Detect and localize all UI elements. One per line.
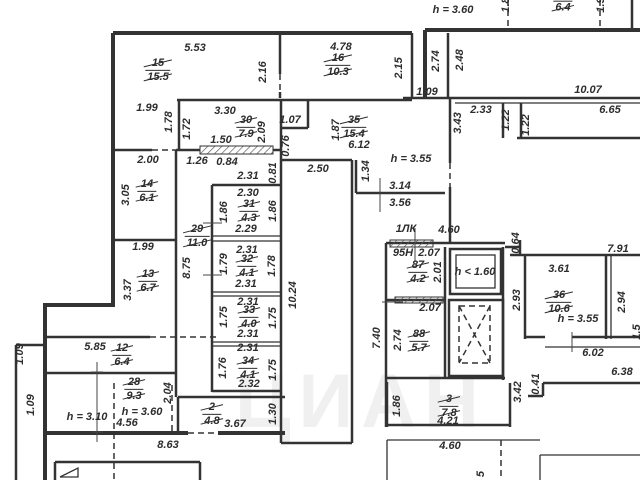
dim-label: 5 [475,471,487,477]
room-number: 32 [237,253,256,267]
room-label-87: 874.2 [408,259,427,285]
dim-label: 2.29 [235,223,256,235]
dim-label: 3.14 [389,180,410,192]
dim-label: 1.50 [210,134,231,146]
dim-label: 0.81 [267,162,279,183]
dim-label: 2.93 [511,289,523,310]
room-area: 6.4 [553,2,572,15]
room-number: 2 [202,401,221,415]
dim-label: 1.22 [520,114,532,135]
dim-label: 0.84 [216,156,237,168]
dim-label: 6.38 [611,366,632,378]
dim-label: 2.48 [454,49,466,70]
room-number: 12 [112,342,131,356]
dim-label: 6.65 [599,104,620,116]
room-number: 14 [137,178,156,192]
room-label-31: 314.3 [239,198,258,224]
dim-label: 2.50 [307,163,328,175]
dim-label: 6.02 [582,347,603,359]
dim-label: 3.05 [120,184,132,205]
room-number: 87 [408,259,427,273]
room-area: 15.4 [341,128,366,141]
room-label-29: 2911.0 [185,223,210,249]
room-area: 10.6 [546,303,571,316]
dim-label: 1.99 [136,102,157,114]
dim-label: 2.31 [235,278,256,290]
dim-label: 2.94 [616,291,628,312]
dim-label: 1.75 [267,307,279,328]
room-area: 4.2 [408,273,427,286]
dim-label: 1.72 [181,118,193,139]
room-area: 15.5 [145,71,170,84]
dim-label: 1.26 [186,155,207,167]
room-label-35: 3515.4 [341,114,366,140]
unit-number-label: 95Н [393,247,413,259]
room-number: 88 [409,328,428,342]
labels-layer: 5.534.78h = 3.601.81.92.162.152.742.481.… [0,0,640,480]
dim-label: 1.86 [218,201,230,222]
dim-label: 1.78 [266,255,278,276]
dim-label: 1.9 [595,0,607,13]
dim-label: 1.30 [267,403,279,424]
dim-label: 2.33 [470,104,491,116]
room-number: 34 [238,355,257,369]
room-area: 6.4 [112,356,131,369]
room-area: 7.8 [439,407,458,420]
room-number: 31 [239,198,258,212]
room-number: 35 [341,114,366,128]
ceiling-height-label: h = 3.55 [391,153,432,165]
room-label-32: 324.1 [237,253,256,279]
dim-label: 8.75 [181,257,193,278]
dim-label: 3.67 [224,418,245,430]
room-area: 4.3 [239,212,258,225]
dim-label: 2.07 [418,247,439,259]
room-label-top: 6.4 [553,0,572,14]
dim-label: 0.41 [530,373,542,394]
dim-label: 1.09 [416,86,437,98]
dim-label: 1.99 [132,241,153,253]
room-number: 30 [236,114,255,128]
room-label-28: 289.3 [124,376,143,402]
dim-label: 2.31 [237,170,258,182]
room-label-33: 334.0 [239,304,258,330]
dim-label: 2.74 [430,50,442,71]
dim-label: 2.07 [419,302,440,314]
dim-label: 5.85 [84,341,105,353]
room-number: 16 [325,52,350,66]
dim-label: 1.78 [163,111,175,132]
dim-label: 3.61 [548,263,569,275]
ceiling-height-label: h = 3.10 [67,411,108,423]
room-number: 28 [124,376,143,390]
dim-label: 0.64 [510,232,522,253]
dim-label: 10.24 [287,281,299,309]
dim-label: 2.04 [162,382,174,403]
dim-label: 1.5 [631,324,640,339]
stairwell-label: 1ЛК [396,223,416,235]
dim-label: 1.76 [217,357,229,378]
room-label-13: 136.7 [138,268,157,294]
floor-plan-canvas: ЦИАН [0,0,640,480]
dim-label: 7.40 [371,327,383,348]
room-label-88: 885.7 [409,328,428,354]
room-area: 11.0 [185,237,210,250]
dim-label: 4.56 [116,417,137,429]
room-area: 10.3 [325,66,350,79]
dim-label: 2.00 [137,154,158,166]
room-label-14: 146.1 [137,178,156,204]
room-label-36: 3610.6 [546,289,571,315]
dim-label: 8.63 [157,439,178,451]
room-area: 4.1 [238,369,257,382]
dim-label: 2.74 [392,329,404,350]
dim-label: 3.30 [214,105,235,117]
dim-label: 1.79 [218,253,230,274]
dim-label: 5.53 [184,42,205,54]
room-area: 4.0 [239,318,258,331]
dim-label: 4.60 [439,440,460,452]
room-label-12: 126.4 [112,342,131,368]
room-area: 6.7 [138,282,157,295]
room-number: 33 [239,304,258,318]
dim-label: 1.86 [267,200,279,221]
room-label-30: 307.9 [236,114,255,140]
dim-label: 2.01 [432,261,444,282]
dim-label: 1.07 [279,114,300,126]
dim-label: 3.37 [122,279,134,300]
dim-label: 3.42 [512,381,524,402]
room-area: 4.8 [202,415,221,428]
dim-label: 2.15 [393,57,405,78]
dim-label: 1.09 [25,394,37,415]
dim-label: 1.09 [14,343,26,364]
dim-label: 1.8 [500,0,512,13]
dim-label: 2.16 [257,61,269,82]
dim-label: 10.07 [574,84,602,96]
dim-label: 0.76 [280,135,292,156]
dim-label: 1.75 [267,359,279,380]
room-label-2: 24.8 [202,401,221,427]
room-area: 5.7 [409,342,428,355]
room-area: 9.3 [124,390,143,403]
dim-label: 7.91 [607,243,628,255]
dim-label: 1.34 [360,160,372,181]
room-area: 6.1 [137,192,156,205]
room-number: 36 [546,289,571,303]
room-label-34: 344.1 [238,355,257,381]
dim-label: 1.75 [218,306,230,327]
ceiling-height-label: h < 1.60 [455,266,496,278]
dim-label: 2.31 [237,342,258,354]
room-number: 15 [145,57,170,71]
dim-label: 1.22 [500,109,512,130]
dim-label: 6.12 [348,139,369,151]
ceiling-height-label: h = 3.60 [433,4,474,16]
room-label-3: 37.8 [439,393,458,419]
room-area: 7.9 [236,128,255,141]
dim-label: 3.43 [452,112,464,133]
room-area: 4.1 [237,267,256,280]
dim-label: 2.09 [256,121,268,142]
room-number: 13 [138,268,157,282]
dim-label: 4.60 [438,224,459,236]
dim-label: 1.86 [391,395,403,416]
room-label-16: 1610.3 [325,52,350,78]
room-label-15: 1515.5 [145,57,170,83]
dim-label: 3.56 [389,197,410,209]
room-number: 3 [439,393,458,407]
room-number: 29 [185,223,210,237]
